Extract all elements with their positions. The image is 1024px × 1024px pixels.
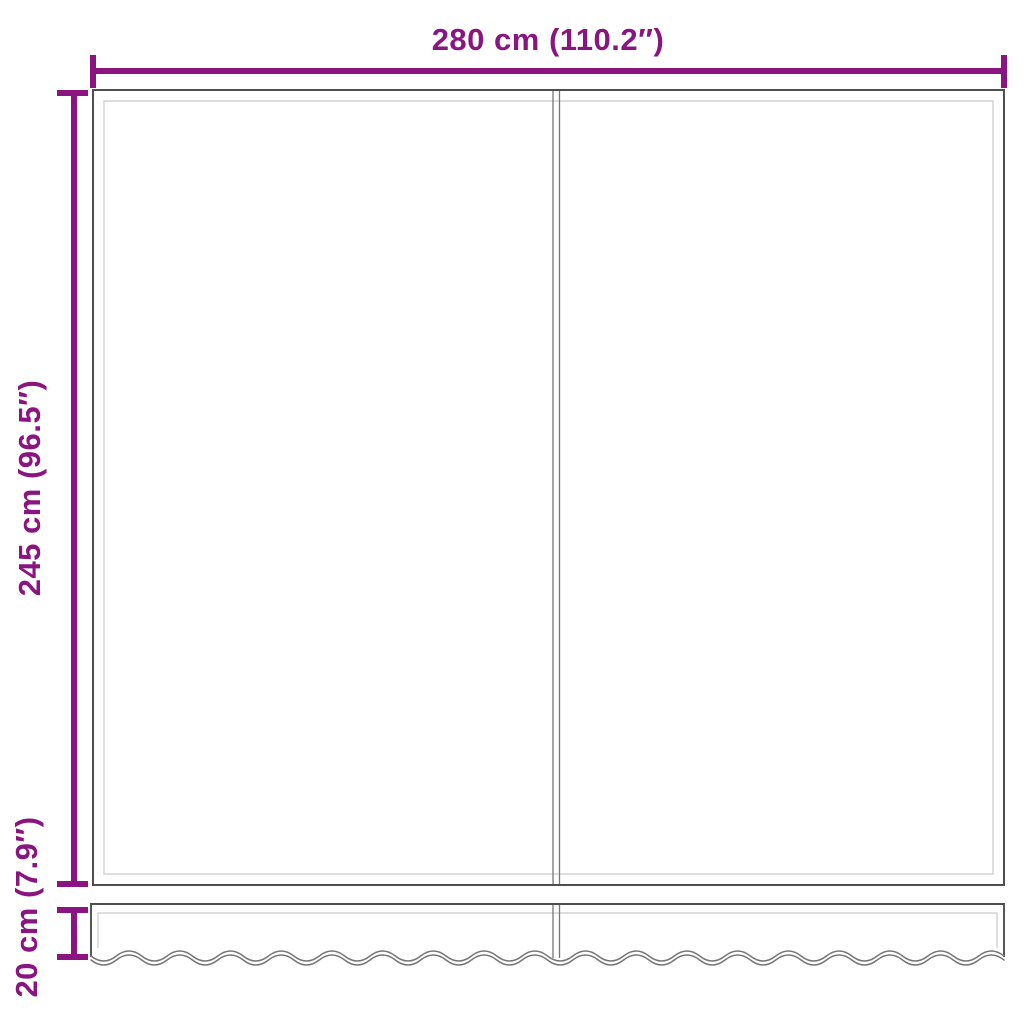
valance-strip — [91, 904, 1004, 965]
valance-outline — [91, 904, 1004, 957]
valance-height-dimension-cap-top — [57, 907, 88, 913]
valance-height-dimension-cap-bottom — [57, 954, 88, 960]
width-dimension-line — [93, 68, 1004, 74]
diagram-canvas: 280 cm (110.2″) 245 cm (96.5″) 20 cm (7.… — [0, 0, 1024, 1024]
fabric-panel — [93, 90, 1004, 885]
height-dimension-cap-bottom — [57, 881, 88, 887]
valance-height-dimension-label: 20 cm (7.9″) — [9, 816, 45, 997]
width-dimension-cap-left — [90, 55, 96, 88]
height-dimension-label: 245 cm (96.5″) — [12, 380, 48, 597]
awning-fabric-drawing — [0, 0, 1024, 1024]
width-dimension-cap-right — [1001, 55, 1007, 88]
fabric-panel-outline — [93, 90, 1004, 885]
width-dimension-label: 280 cm (110.2″) — [432, 22, 665, 58]
height-dimension-line — [71, 93, 77, 884]
fabric-panel-center-seam — [553, 91, 560, 884]
height-dimension-cap-top — [57, 90, 88, 96]
fabric-panel-hem-line — [104, 101, 993, 874]
valance-hem-line — [98, 913, 997, 948]
valance-height-dimension-line — [71, 910, 77, 957]
